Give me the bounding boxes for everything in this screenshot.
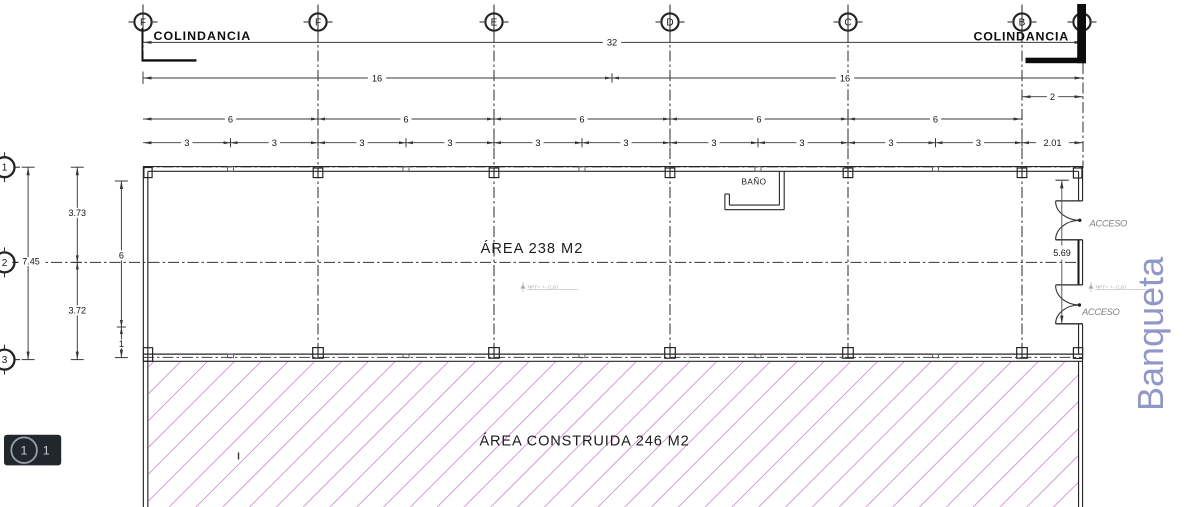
svg-text:Banqueta: Banqueta: [1130, 256, 1171, 411]
svg-text:3: 3: [2, 355, 8, 366]
svg-text:6: 6: [756, 114, 761, 124]
svg-text:3: 3: [799, 138, 804, 148]
svg-text:3: 3: [623, 138, 628, 148]
svg-text:ACCESO: ACCESO: [1081, 306, 1121, 317]
svg-text:C: C: [844, 18, 851, 29]
svg-text:COLINDANCIA: COLINDANCIA: [974, 29, 1070, 43]
svg-text:3: 3: [976, 138, 981, 148]
svg-text:5.69: 5.69: [1053, 248, 1071, 258]
svg-text:ACCESO: ACCESO: [1089, 218, 1129, 229]
svg-text:2: 2: [1050, 92, 1055, 102]
svg-text:2.01: 2.01: [1043, 138, 1061, 148]
svg-text:3: 3: [184, 138, 189, 148]
svg-text:E: E: [491, 18, 498, 29]
svg-text:2: 2: [2, 258, 8, 269]
svg-text:3: 3: [272, 138, 277, 148]
svg-text:6: 6: [228, 114, 233, 124]
svg-text:16: 16: [372, 73, 382, 83]
svg-text:6: 6: [933, 114, 938, 124]
svg-text:NPT= +- 0.20: NPT= +- 0.20: [528, 284, 559, 289]
svg-text:6: 6: [403, 114, 408, 124]
svg-text:NPT= +- 0.20: NPT= +- 0.20: [1096, 284, 1127, 289]
svg-text:BAÑO: BAÑO: [741, 177, 766, 187]
svg-text:3: 3: [359, 138, 364, 148]
svg-text:COLINDANCIA: COLINDANCIA: [154, 29, 252, 43]
svg-text:3: 3: [888, 138, 893, 148]
svg-text:ÁREA 238 M2: ÁREA 238 M2: [481, 240, 584, 257]
svg-text:F: F: [140, 18, 146, 29]
svg-text:3: 3: [535, 138, 540, 148]
svg-text:16: 16: [840, 73, 850, 83]
svg-text:1: 1: [119, 339, 124, 349]
svg-text:3: 3: [711, 138, 716, 148]
svg-text:3: 3: [447, 138, 452, 148]
svg-text:6: 6: [119, 251, 124, 261]
svg-text:1: 1: [2, 163, 8, 174]
svg-text:1: 1: [43, 444, 50, 458]
svg-text:F: F: [315, 18, 321, 29]
svg-text:1: 1: [21, 444, 28, 458]
svg-text:32: 32: [607, 38, 617, 48]
svg-text:B: B: [1019, 18, 1026, 29]
svg-text:ÁREA CONSTRUIDA 246 M2: ÁREA CONSTRUIDA 246 M2: [479, 432, 689, 449]
svg-text:7.45: 7.45: [22, 257, 40, 267]
svg-text:D: D: [666, 18, 673, 29]
svg-text:3.73: 3.73: [69, 208, 87, 218]
svg-text:3.72: 3.72: [69, 306, 87, 316]
svg-text:6: 6: [579, 114, 584, 124]
